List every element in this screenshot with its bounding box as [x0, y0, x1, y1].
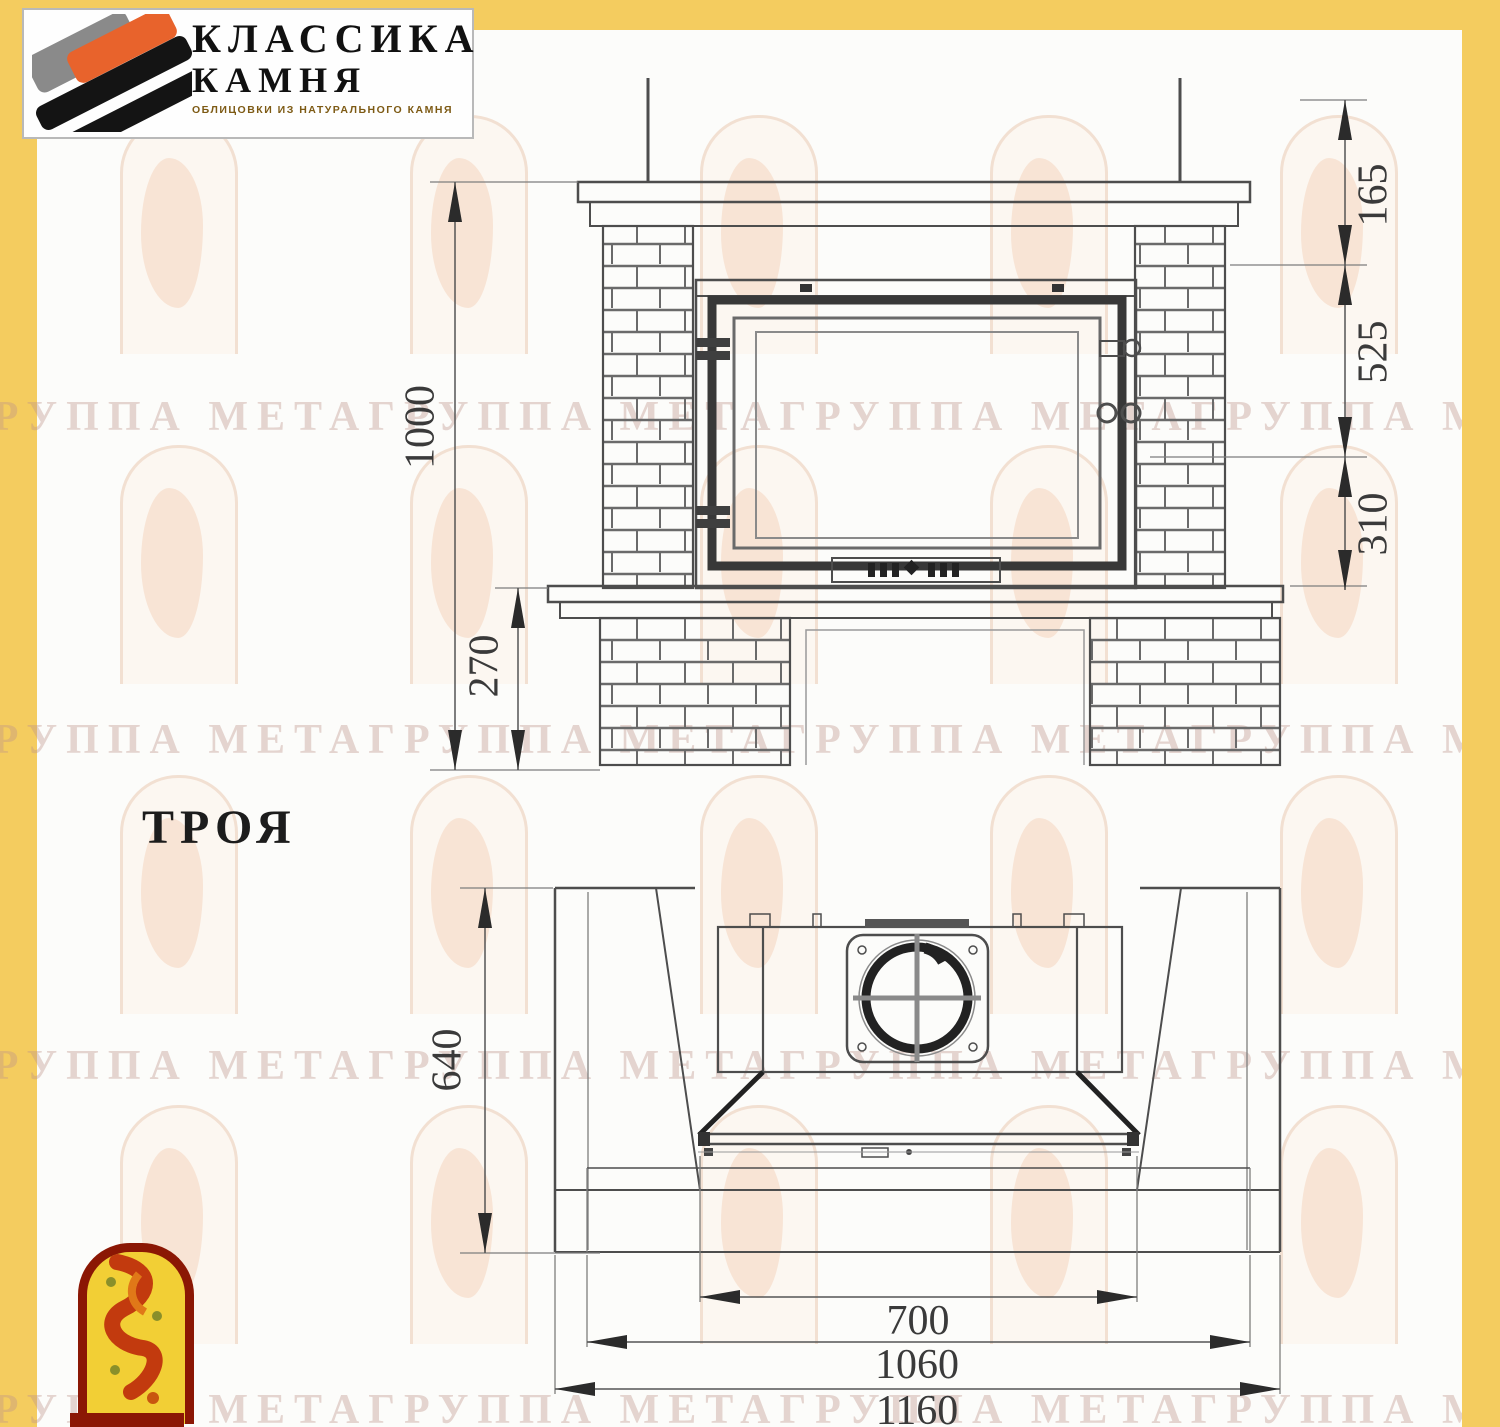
- logo-stone-icon: [32, 14, 192, 132]
- firebox-top-view: [698, 914, 1139, 1157]
- dim-front-total-height: 1000: [398, 385, 444, 469]
- mantel-shelf-top: [578, 182, 1250, 202]
- front-view: [548, 78, 1283, 765]
- dim-plan-hearth-width: 1060: [875, 1342, 959, 1388]
- scanned-sheet: ГРУППА МЕТАГРУППА МЕТАГРУППА МЕТАГРУППА …: [0, 0, 1500, 1427]
- left-brick-pedestal: [600, 618, 790, 765]
- model-name-label: ТРОЯ: [142, 800, 297, 855]
- right-brick-column: [1135, 226, 1225, 588]
- mantel-shelf-lower: [590, 202, 1238, 226]
- meta-arch-emblem: [78, 1243, 194, 1424]
- left-brick-column: [603, 226, 693, 588]
- front-frame: [698, 1134, 1139, 1144]
- chimney-pipes: [648, 78, 1180, 182]
- right-brick-pedestal: [1090, 618, 1280, 765]
- company-logo: КЛАССИКА КАМНЯ ОБЛИЦОВКИ ИЗ НАТУРАЛЬНОГО…: [22, 8, 474, 139]
- splayed-sides: [699, 1072, 1139, 1135]
- dim-front-base-height: 270: [462, 635, 508, 698]
- logo-title-line1: КЛАССИКА: [192, 18, 468, 60]
- firebox-door-frame: [712, 300, 1122, 566]
- emblem-figure-icon: [87, 1252, 185, 1424]
- hearth-shelf-lower: [560, 602, 1272, 618]
- damper-cross: [853, 934, 981, 1062]
- dim-plan-total-width: 1160: [876, 1388, 958, 1427]
- fireplace-technical-drawing: 1000 270 165 525 310 640 700 1060 1160: [0, 0, 1500, 1427]
- emblem-base-bar: [70, 1413, 184, 1427]
- firebox-insert: [696, 280, 1140, 588]
- dim-front-middle-segment: 525: [1351, 321, 1397, 384]
- dim-plan-depth: 640: [425, 1029, 471, 1092]
- dim-front-bottom-segment: 310: [1351, 493, 1397, 556]
- door-glass: [756, 332, 1078, 538]
- logo-tagline: ОБЛИЦОВКИ ИЗ НАТУРАЛЬНОГО КАМНЯ: [192, 104, 468, 116]
- base-recess: [806, 630, 1084, 765]
- plan-view: [555, 888, 1280, 1252]
- dim-front-top-segment: 165: [1351, 164, 1397, 227]
- logo-title-line2: КАМНЯ: [192, 60, 468, 100]
- dim-plan-opening-width: 700: [887, 1298, 950, 1344]
